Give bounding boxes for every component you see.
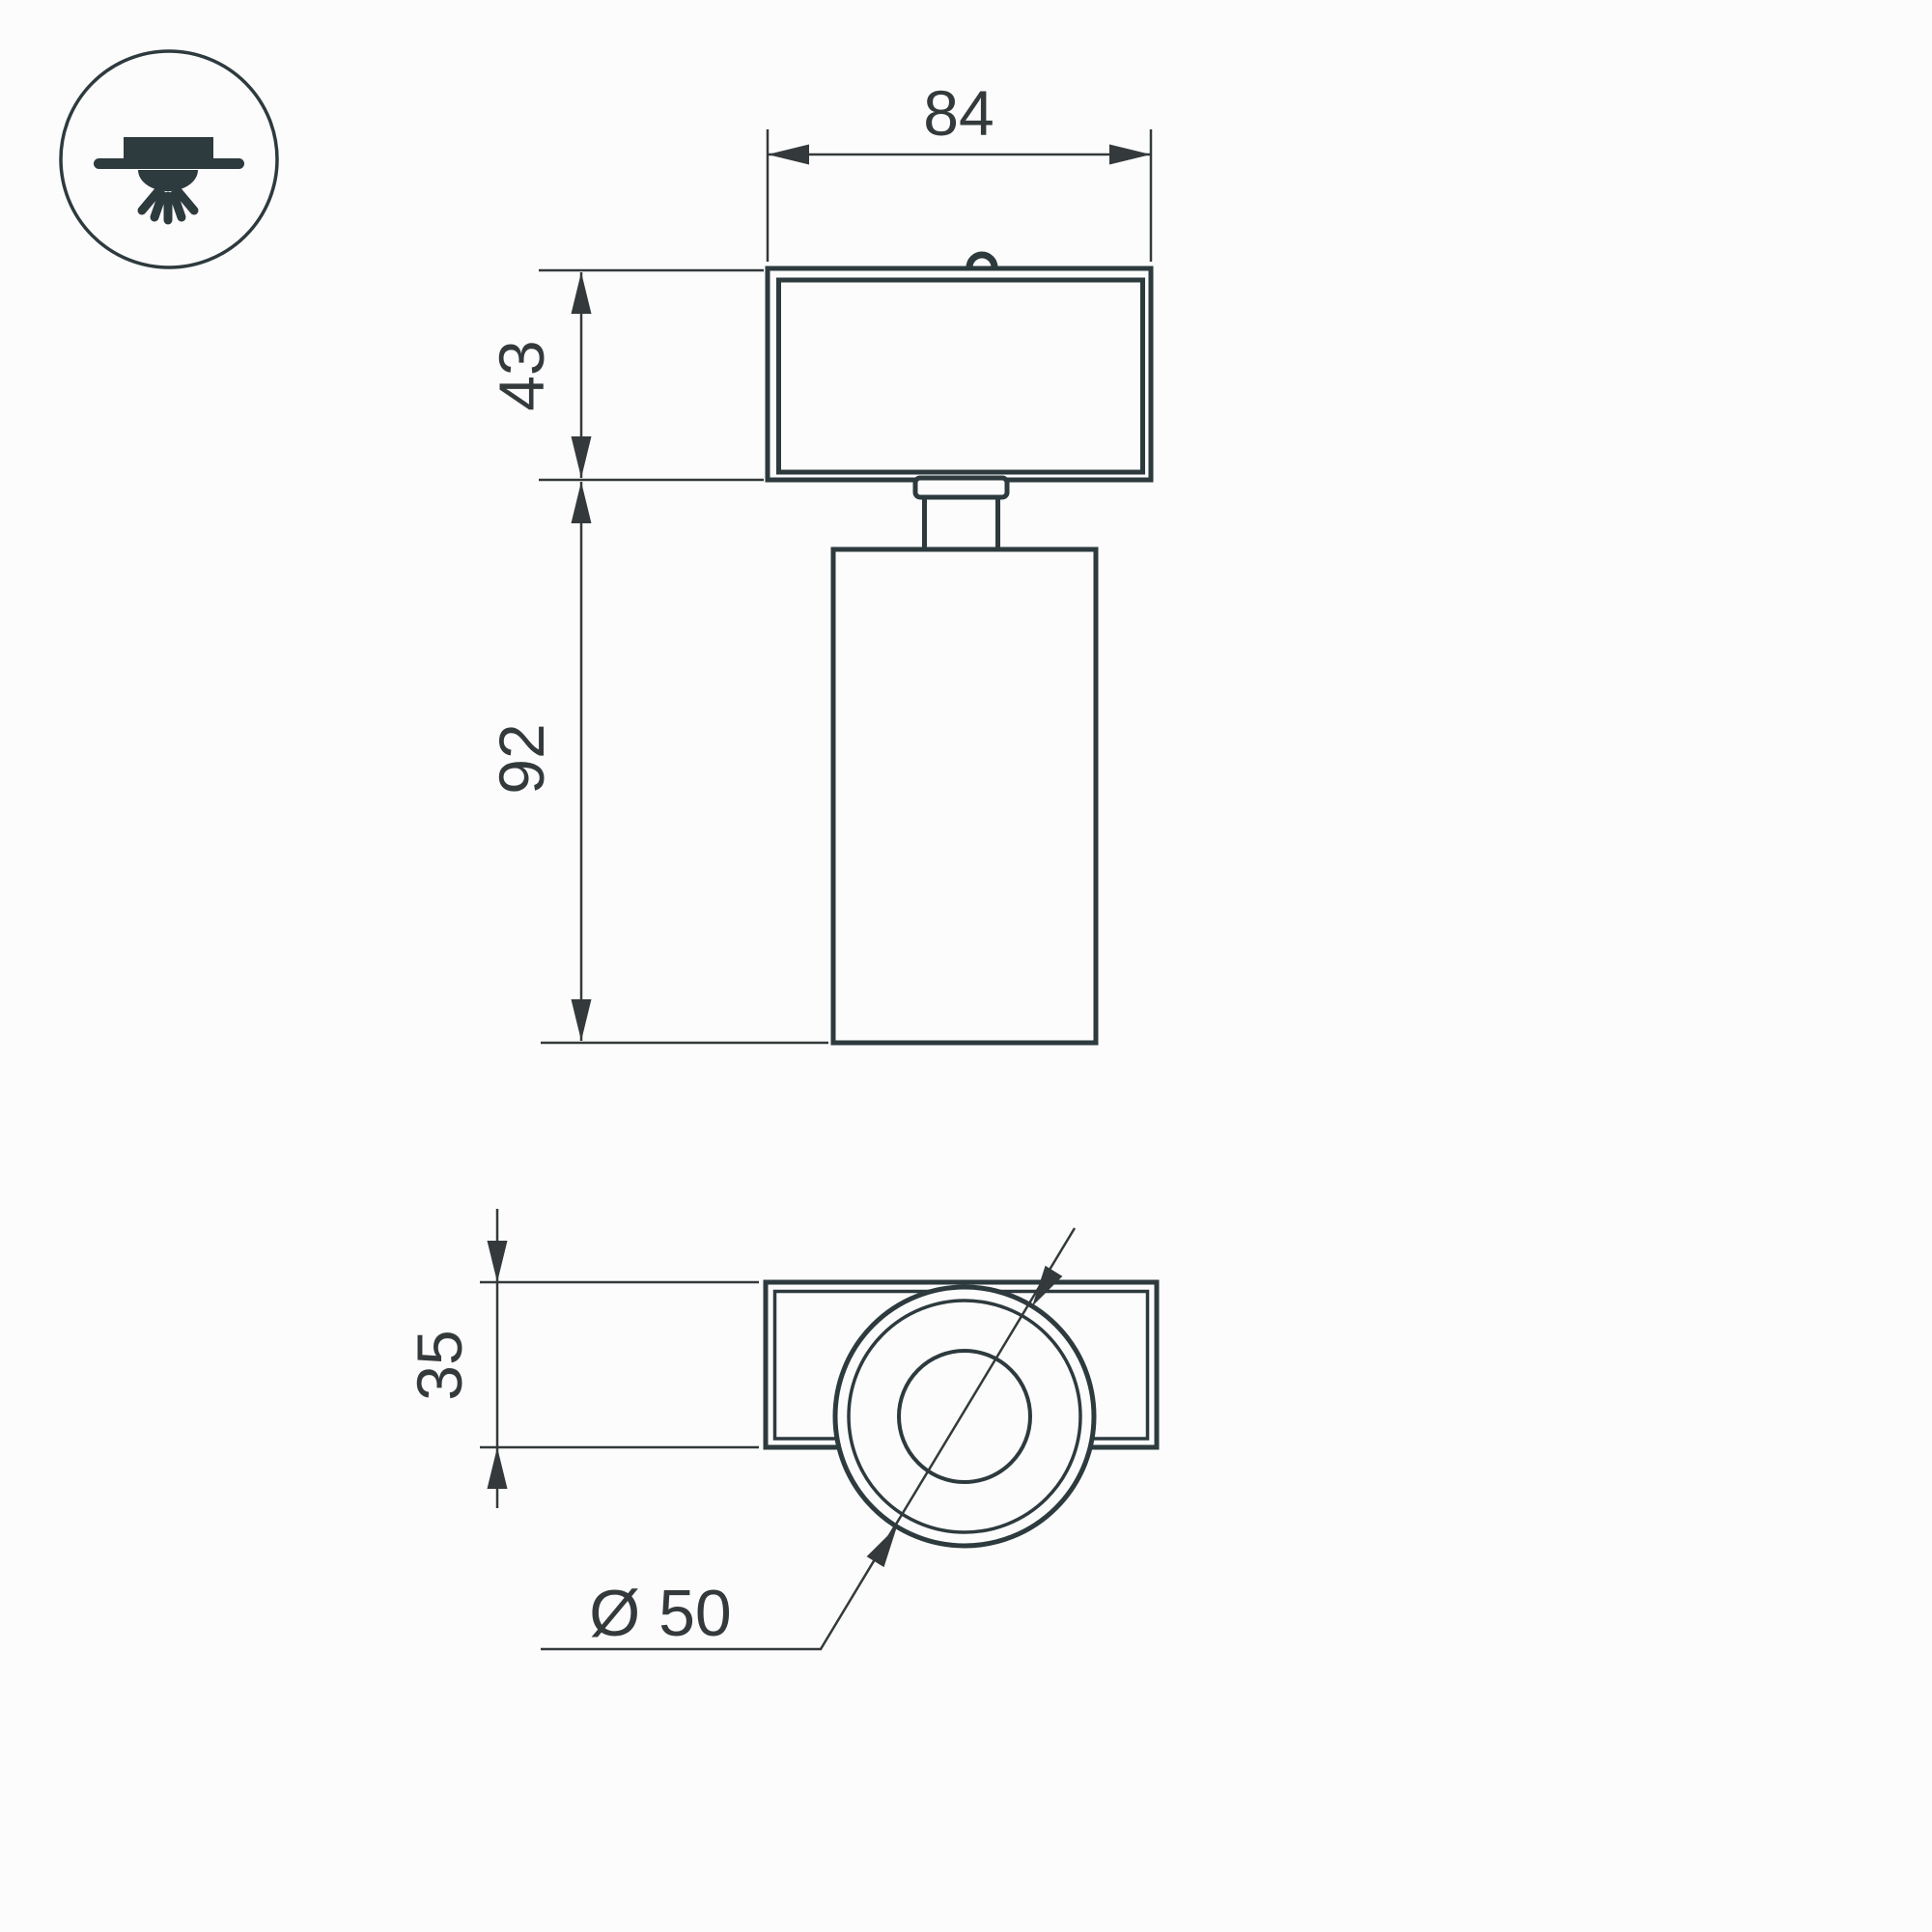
dimension-base-height-43: 43 xyxy=(486,270,764,480)
arrowhead-up xyxy=(488,1447,508,1489)
icon-light-rays xyxy=(142,192,194,220)
icon-ceiling-line xyxy=(94,158,244,169)
dimension-label-depth: 35 xyxy=(404,1330,475,1400)
dimension-label-base-height: 43 xyxy=(486,340,557,410)
dimension-body-height-92: 92 xyxy=(486,482,828,1043)
arrowhead-up xyxy=(572,482,592,523)
arrowhead-down xyxy=(572,436,592,478)
icon-light-dome xyxy=(138,170,198,191)
arrowhead-down xyxy=(572,999,592,1041)
cable-entry-knob xyxy=(969,255,994,267)
arrowhead-up xyxy=(572,272,592,314)
arrowhead-right xyxy=(1109,145,1151,165)
technical-drawing: 84 43 92 35 Ø 50 xyxy=(0,0,1932,1932)
dimension-label-width: 84 xyxy=(923,77,994,149)
mount-base-outer xyxy=(768,268,1151,480)
dimension-label-body-height: 92 xyxy=(486,723,557,794)
dimension-width-84: 84 xyxy=(768,77,1151,262)
arrowhead-down xyxy=(488,1241,508,1282)
dimension-depth-35: 35 xyxy=(404,1209,759,1508)
dimension-label-diameter: Ø 50 xyxy=(589,1577,731,1650)
arrowhead-left xyxy=(768,145,809,165)
ceiling-light-icon xyxy=(94,137,244,220)
cylinder-body xyxy=(833,549,1096,1043)
arrowhead-lower xyxy=(867,1526,897,1567)
pivot-flange xyxy=(915,478,1007,497)
mounting-type-icon xyxy=(61,51,277,267)
lamp-ring-outer xyxy=(835,1287,1094,1546)
front-view xyxy=(768,255,1151,1043)
